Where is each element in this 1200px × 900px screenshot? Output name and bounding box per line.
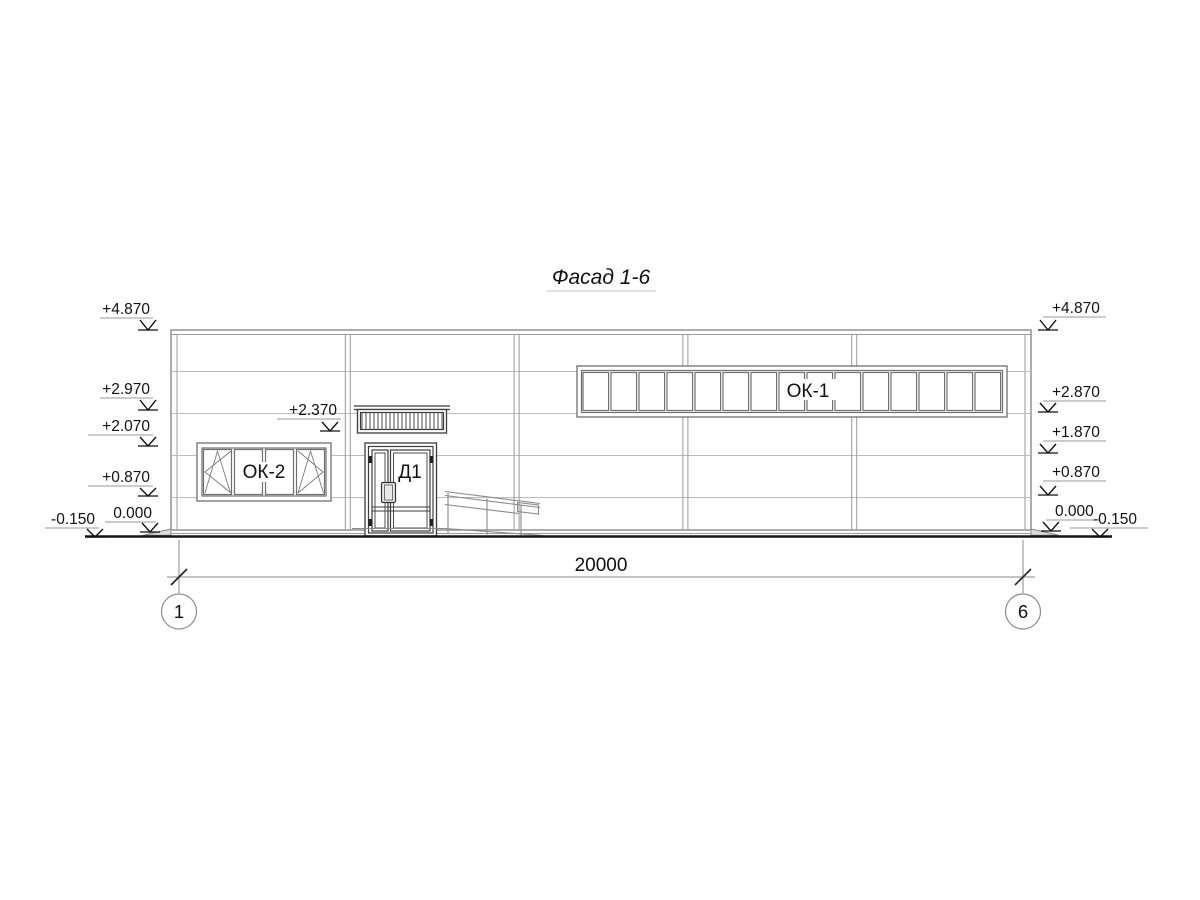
level-label: -0.150: [51, 511, 95, 528]
building-elevation: [171, 330, 1031, 534]
level-label: 0.000: [113, 505, 152, 522]
level-label: +2.870: [1052, 384, 1100, 401]
facade-drawing-sheet: Фасад 1-6 ОК-1: [0, 0, 1200, 900]
louver-slats: [362, 413, 442, 429]
louver-vent: [354, 406, 450, 433]
level-mark-left-2070: +2.070: [88, 418, 158, 446]
level-label: +0.870: [1052, 464, 1100, 481]
level-label: +2.970: [102, 381, 150, 398]
axis-bubble-6: 6: [1006, 594, 1041, 629]
level-mark-right-4870: +4.870: [1038, 300, 1106, 330]
level-label: +2.370: [289, 402, 337, 419]
page-title: Фасад 1-6: [552, 266, 651, 289]
level-label: +4.870: [1052, 300, 1100, 317]
overall-dimension: 20000: [167, 540, 1035, 593]
dimension-value: 20000: [575, 555, 628, 576]
axis-number: 6: [1018, 601, 1028, 622]
level-label: +1.870: [1052, 424, 1100, 441]
level-mark-left-2970: +2.970: [100, 381, 158, 410]
window-ok2: ОК-2: [197, 443, 331, 501]
level-mark-left-0870: +0.870: [88, 469, 158, 496]
level-mark-left-4870: +4.870: [100, 301, 158, 330]
level-label: +4.870: [102, 301, 150, 318]
level-label: 0.000: [1055, 503, 1094, 520]
level-mark-right-1870: +1.870: [1038, 424, 1106, 453]
level-label: +0.870: [102, 469, 150, 486]
level-mark-right-2870: +2.870: [1038, 384, 1106, 412]
level-mark-right-0000: 0.000: [1041, 503, 1100, 531]
window-ok1: ОК-1: [577, 366, 1007, 417]
level-label: +2.070: [102, 418, 150, 435]
level-mark-right-0870: +0.870: [1038, 464, 1106, 495]
door-label: Д1: [398, 462, 421, 483]
drawing-title: Фасад 1-6: [547, 266, 656, 291]
window-ok1-label: ОК-1: [787, 381, 830, 402]
window-ok2-label: ОК-2: [243, 462, 286, 483]
level-mark-left-minus0150: -0.150: [45, 511, 105, 537]
blind-area-right: [1031, 529, 1059, 535]
door-outer-frame: [365, 443, 437, 536]
facade-drawing: Фасад 1-6 ОК-1: [0, 0, 1200, 900]
door-handle: [382, 483, 396, 503]
level-label: -0.150: [1093, 511, 1137, 528]
door-d1: Д1: [365, 443, 437, 536]
axis-bubble-1: 1: [162, 594, 197, 629]
axis-number: 1: [174, 601, 184, 622]
level-mark-left-0000: 0.000: [105, 505, 160, 532]
